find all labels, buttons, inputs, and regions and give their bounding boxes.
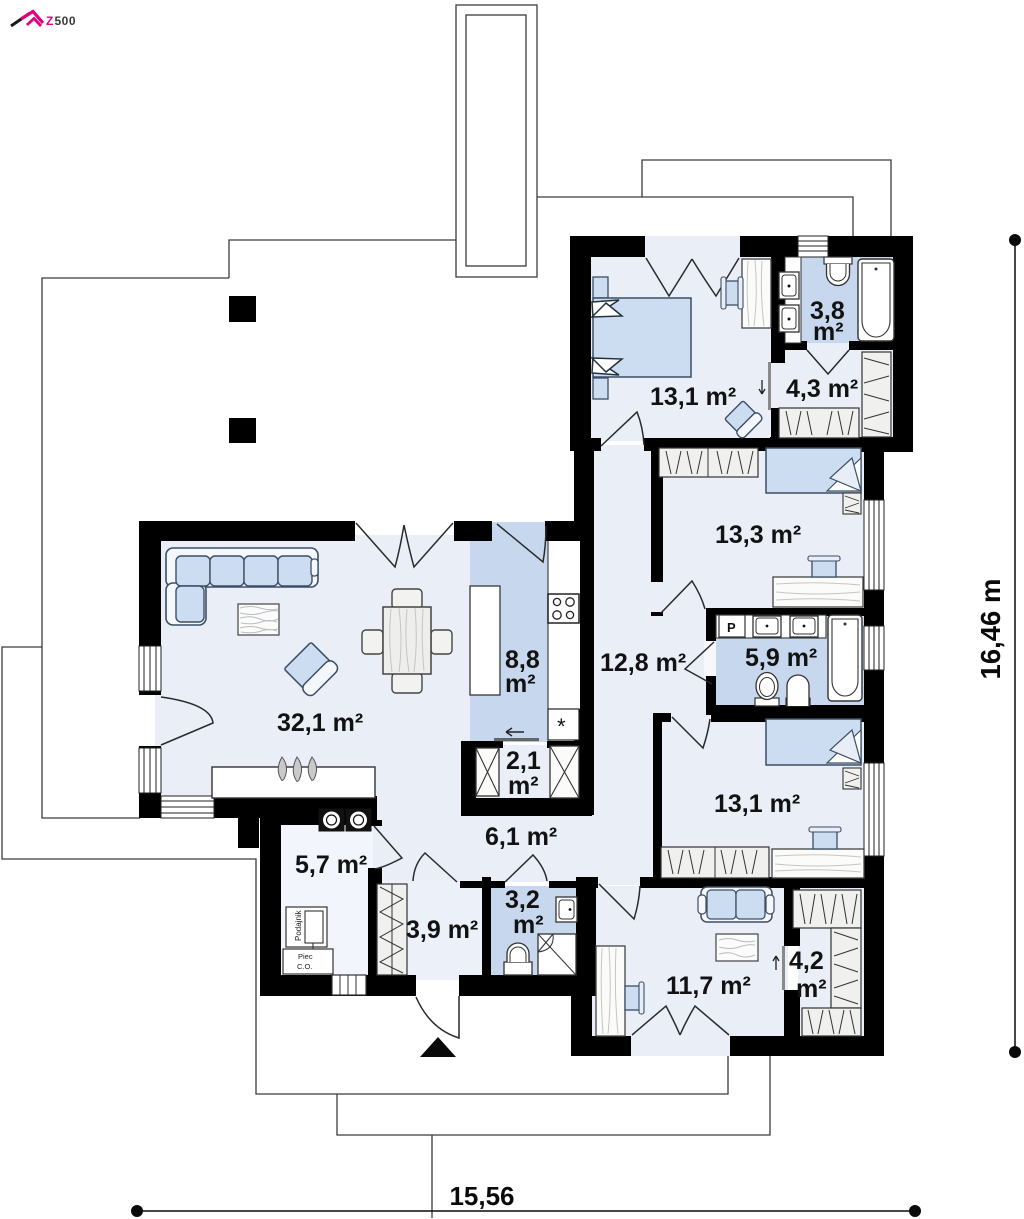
svg-text:12,8 m²: 12,8 m² <box>600 649 686 677</box>
svg-text:2,1: 2,1 <box>506 747 541 775</box>
svg-text:4,3 m²: 4,3 m² <box>786 375 858 403</box>
svg-text:m²: m² <box>813 318 844 346</box>
svg-text:13,3 m²: 13,3 m² <box>715 521 801 549</box>
svg-text:m²: m² <box>505 670 536 698</box>
svg-text:Podajnik: Podajnik <box>294 909 303 941</box>
svg-text:4,2: 4,2 <box>789 947 824 975</box>
svg-text:5,9 m²: 5,9 m² <box>745 644 817 672</box>
svg-text:3,2: 3,2 <box>505 886 540 914</box>
svg-text:6,1 m²: 6,1 m² <box>485 823 557 851</box>
svg-text:16,46 m: 16,46 m <box>975 579 1006 680</box>
svg-text:C.O.: C.O. <box>297 962 312 971</box>
svg-text:11,7 m²: 11,7 m² <box>666 972 751 1000</box>
svg-text:m²: m² <box>513 911 544 939</box>
svg-text:32,1 m²: 32,1 m² <box>277 709 363 737</box>
svg-text:3,9 m²: 3,9 m² <box>406 916 478 944</box>
svg-text:Piec: Piec <box>298 952 313 961</box>
svg-text:15,56: 15,56 <box>449 1181 514 1211</box>
svg-text:m²: m² <box>508 772 539 800</box>
svg-text:13,1 m²: 13,1 m² <box>650 383 736 411</box>
svg-text:P: P <box>727 620 736 635</box>
svg-text:500: 500 <box>55 14 77 28</box>
svg-text:13,1 m²: 13,1 m² <box>714 790 800 818</box>
svg-text:Z: Z <box>46 14 54 28</box>
svg-text:5,7 m²: 5,7 m² <box>295 851 367 879</box>
svg-text:*: * <box>557 714 566 739</box>
svg-text:m²: m² <box>796 975 827 1003</box>
